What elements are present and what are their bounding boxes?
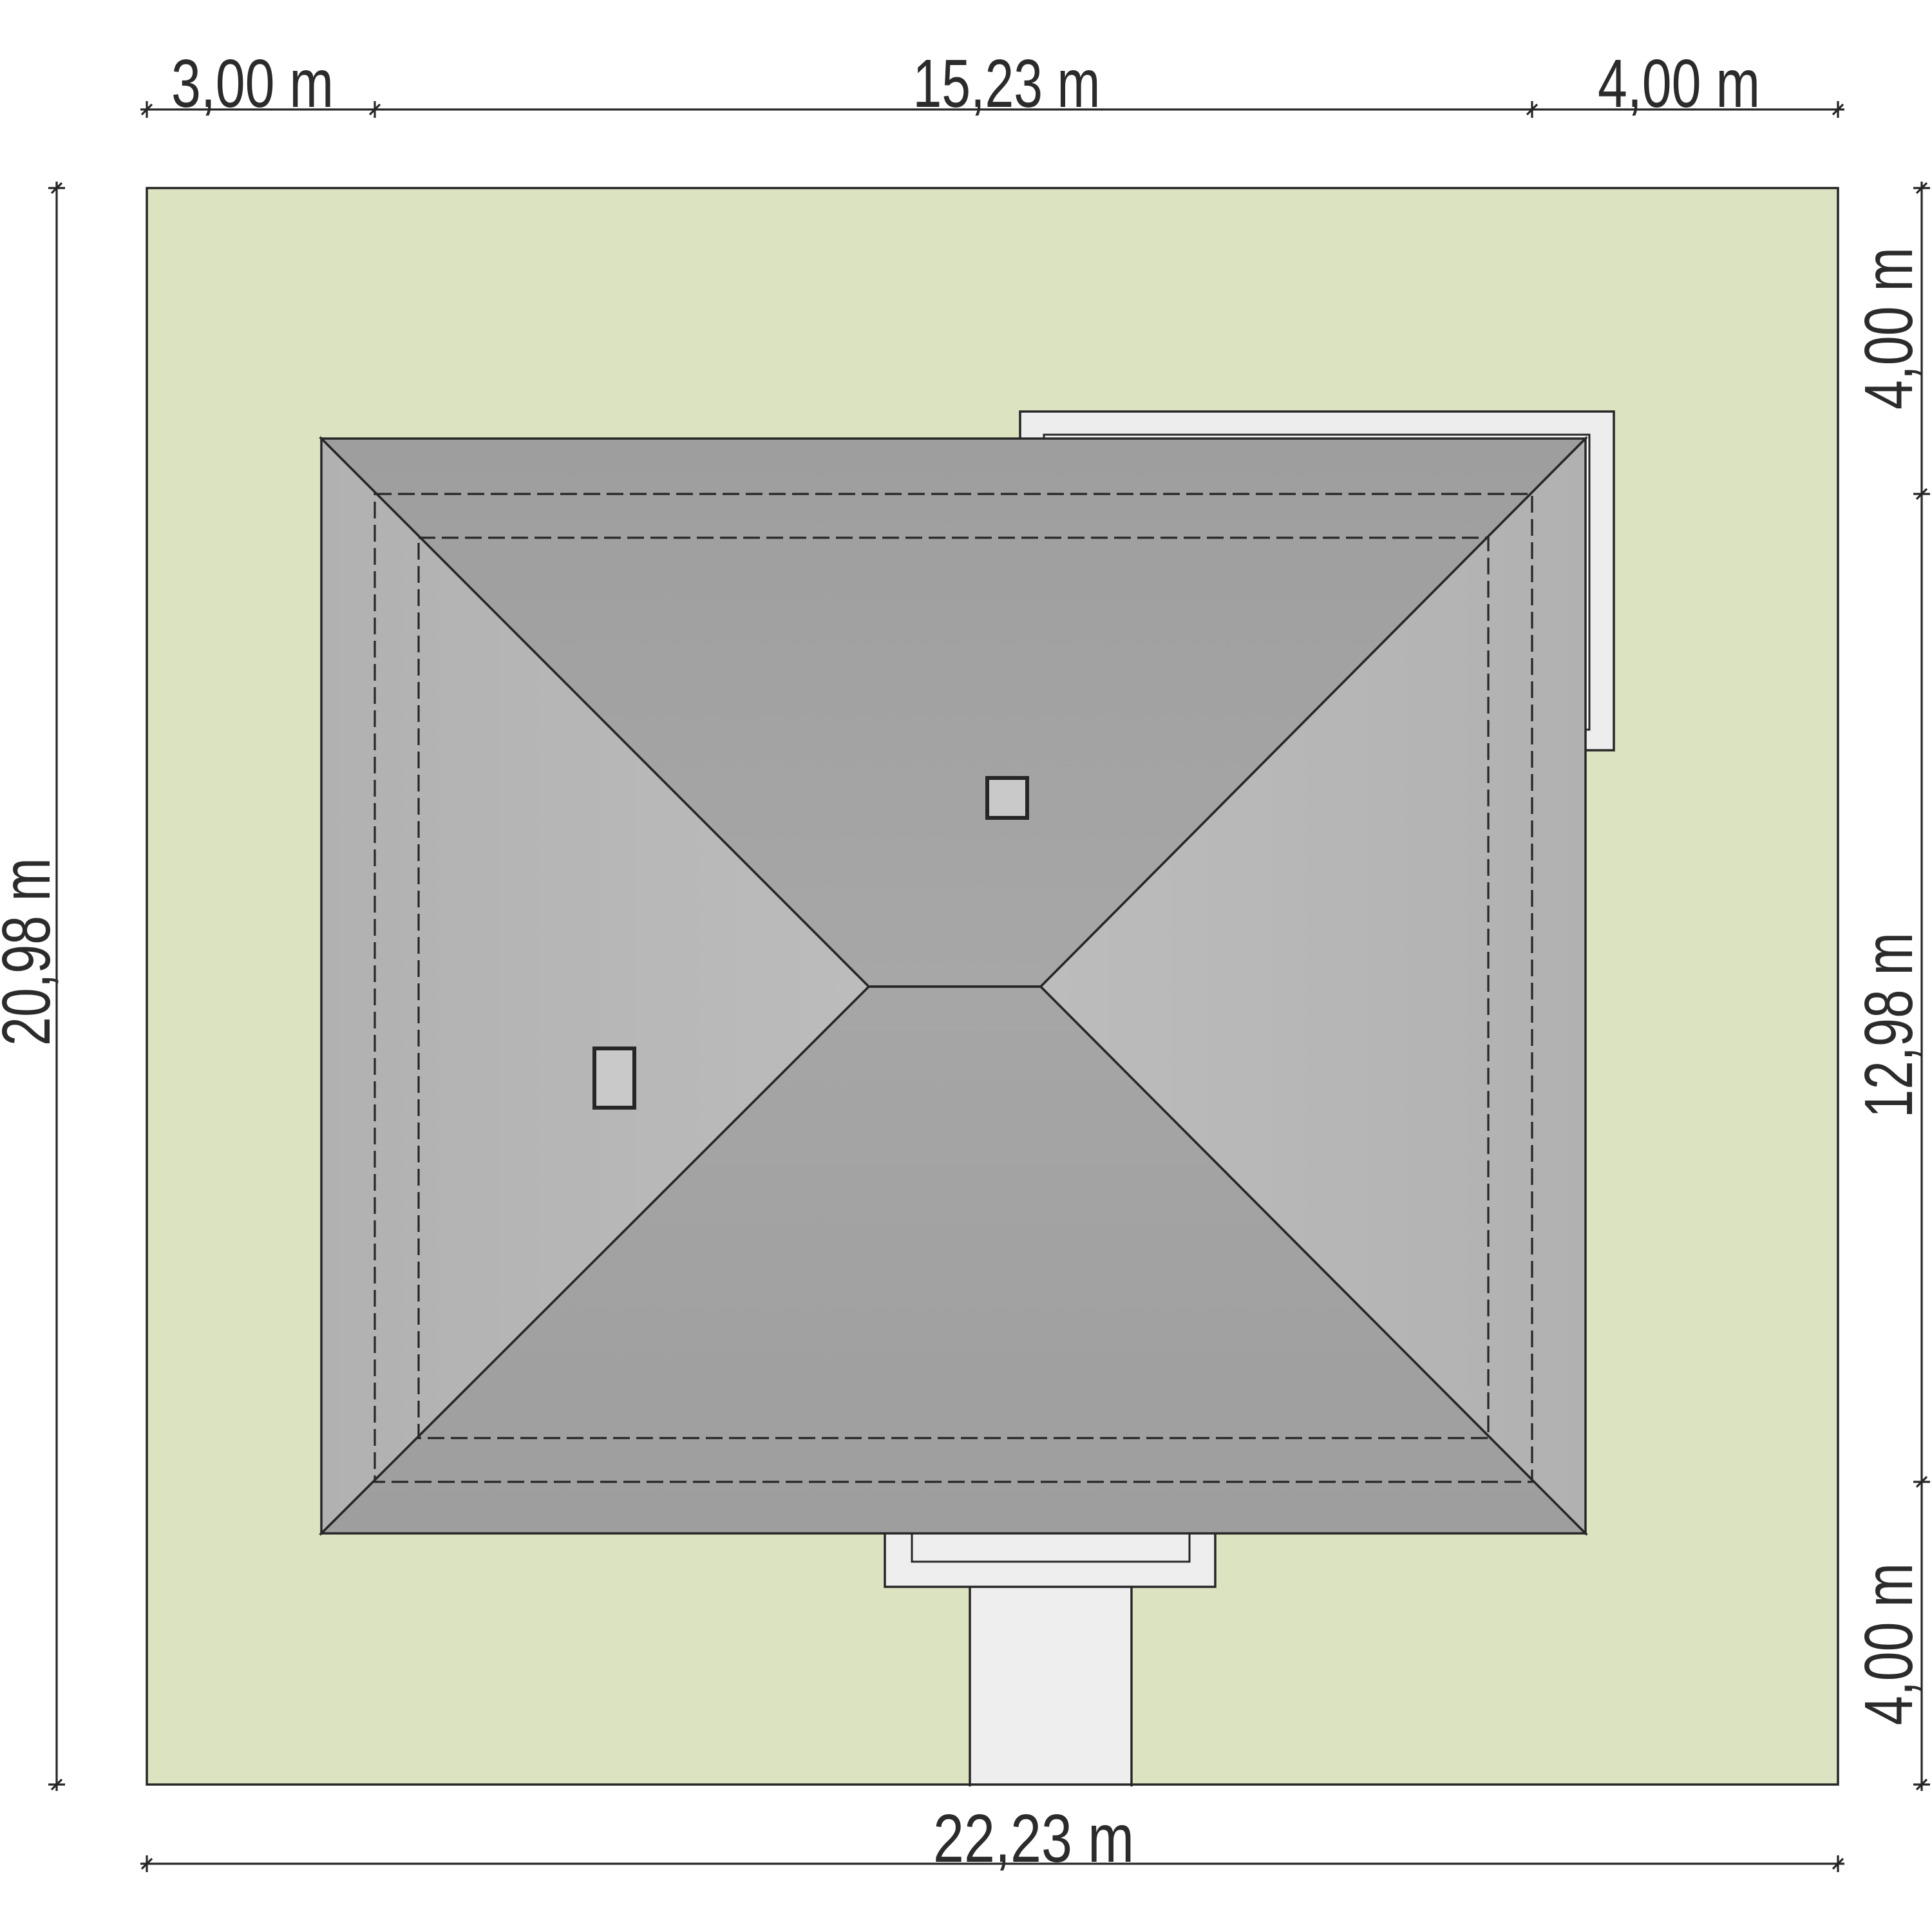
svg-text:3,00 m: 3,00 m (171, 46, 334, 122)
svg-text:12,98 m: 12,98 m (1851, 933, 1927, 1118)
svg-text:4,00 m: 4,00 m (1851, 247, 1927, 410)
svg-text:15,23 m: 15,23 m (913, 46, 1101, 122)
svg-text:4,00 m: 4,00 m (1851, 1563, 1927, 1725)
svg-text:22,23 m: 22,23 m (933, 1801, 1134, 1877)
svg-text:4,00 m: 4,00 m (1598, 46, 1760, 122)
svg-text:20,98 m: 20,98 m (0, 858, 64, 1046)
